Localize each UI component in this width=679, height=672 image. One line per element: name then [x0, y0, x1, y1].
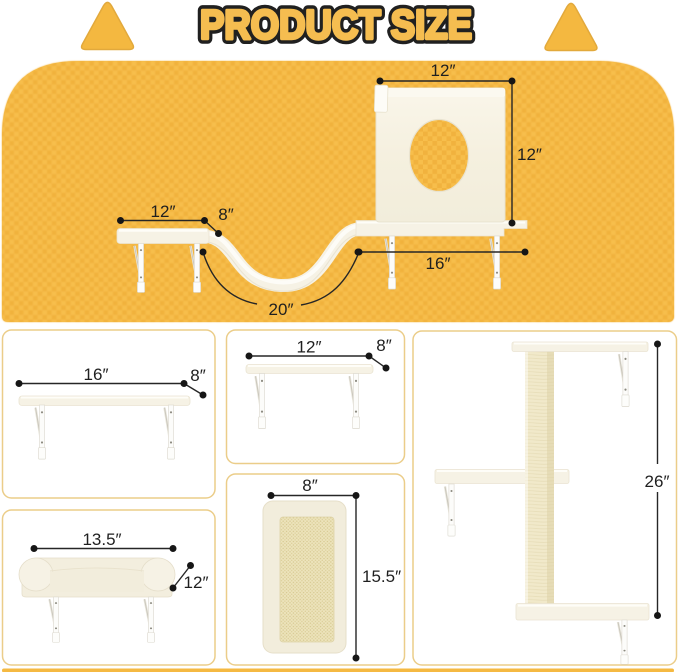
svg-text:26″: 26″: [645, 472, 670, 491]
svg-text:12″: 12″: [517, 145, 542, 164]
svg-text:8″: 8″: [302, 476, 317, 495]
svg-text:16″: 16″: [426, 254, 451, 273]
svg-text:13.5″: 13.5″: [82, 530, 121, 549]
svg-text:12″: 12″: [297, 338, 322, 357]
svg-text:16″: 16″: [84, 365, 109, 384]
svg-text:12″: 12″: [151, 202, 176, 221]
svg-text:8″: 8″: [190, 366, 205, 385]
svg-text:20″: 20″: [269, 300, 294, 319]
svg-text:PRODUCT SIZE: PRODUCT SIZE: [200, 2, 472, 48]
svg-text:15.5″: 15.5″: [362, 567, 401, 586]
svg-text:8″: 8″: [218, 205, 233, 224]
svg-text:12″: 12″: [431, 61, 456, 80]
svg-text:12″: 12″: [184, 573, 209, 592]
svg-text:8″: 8″: [376, 336, 391, 355]
